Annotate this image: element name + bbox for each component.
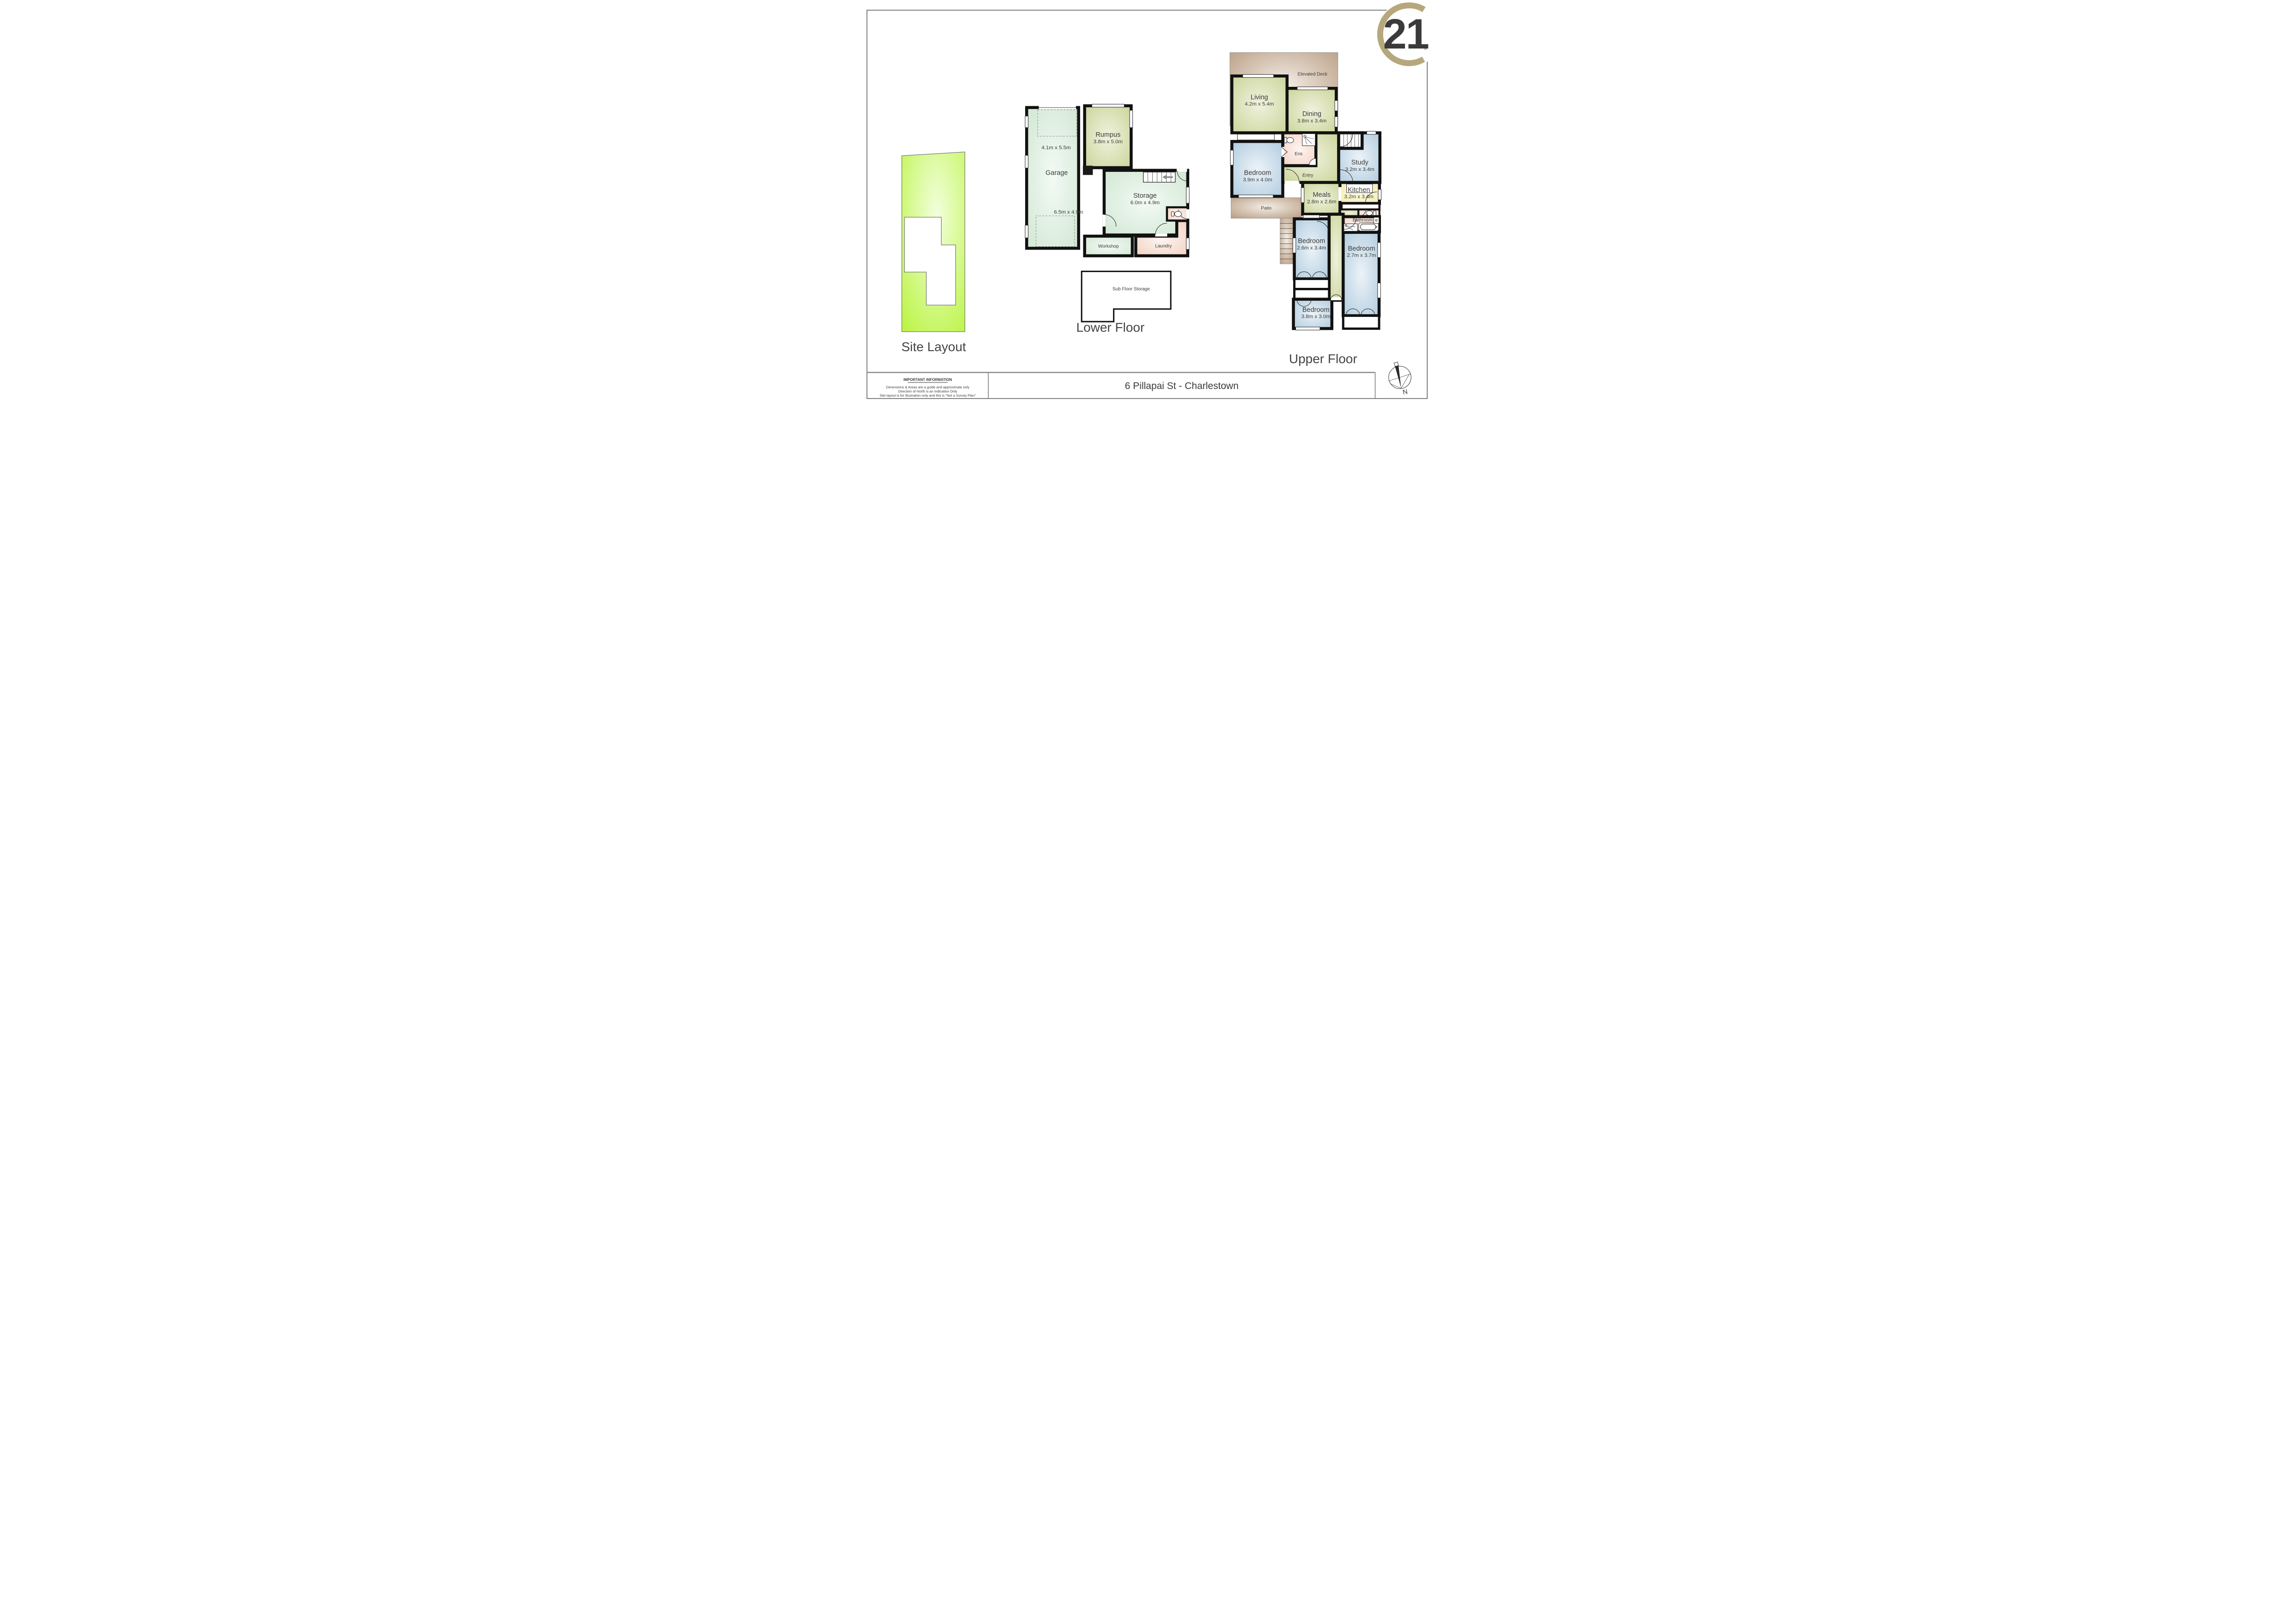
workshop-label: Workshop (1098, 244, 1119, 249)
meals-dims: 2.8m x 2.6m (1307, 199, 1336, 205)
elevated-deck-label: Elevated Deck (1297, 72, 1327, 77)
wardrobe (1294, 289, 1329, 299)
window (1092, 104, 1124, 107)
toilet-icon (1284, 137, 1293, 143)
living-dims: 4.2m x 5.4m (1245, 102, 1274, 107)
wardrobe (1294, 279, 1329, 289)
bedroom-two-dims: 2.6m x 3.4m (1297, 245, 1326, 251)
window (1130, 110, 1132, 128)
important-information: IMPORTANT INFORMATION Dimensions & Areas… (879, 377, 975, 397)
ensuite-label: Ens (1295, 152, 1302, 157)
disclaimer-line-2: Direction of North is an Indication Only (898, 389, 957, 393)
upper-floor-title: Upper Floor (1289, 352, 1357, 366)
room-garage (1027, 108, 1078, 249)
window (1378, 189, 1381, 200)
study-dims: 3.2m x 3.4m (1345, 167, 1374, 172)
room-sub-floor-storage (1082, 271, 1171, 322)
kitchen-dims: 3.2m x 3.4m (1344, 194, 1373, 200)
sink-icon (1374, 217, 1379, 223)
north-compass: N (1388, 362, 1410, 396)
stairs-lower (1143, 172, 1175, 182)
living-label: Living (1250, 94, 1268, 101)
garage-dims-top: 4.1m x 5.5m (1041, 145, 1070, 151)
site-layout-title: Site Layout (901, 340, 966, 354)
room-bedroom-three (1343, 232, 1379, 316)
site-layout: Site Layout (901, 152, 966, 354)
window (1297, 87, 1327, 90)
window (1230, 150, 1233, 165)
window (1377, 243, 1380, 257)
entry-label: Entry (1302, 173, 1313, 178)
pillar (1082, 166, 1092, 175)
century21-logo: 21 ® (1376, 1, 1432, 67)
toilet-icon (1171, 211, 1181, 216)
patio-label: Patio (1261, 206, 1271, 211)
door-opening (1102, 214, 1105, 226)
sub-floor-storage-label: Sub Floor Storage (1112, 287, 1149, 292)
lower-floor-plan: 4.1m x 5.5m Garage 6.5m x 4.9m Rumpus 3.… (1025, 104, 1189, 334)
garage-dims-bottom: 6.5m x 4.9m (1054, 209, 1083, 215)
upper-floor-plan: Elevated Deck Living 4.2m x 5.4m Dining … (1230, 53, 1381, 366)
storage-label: Storage (1133, 192, 1157, 200)
bathroom-label: Bathroom (1352, 218, 1372, 223)
bedroom-main-label: Bedroom (1244, 170, 1271, 177)
bathtub-icon (1358, 223, 1378, 231)
door-opening (1186, 209, 1189, 219)
window (1377, 283, 1380, 298)
study-label: Study (1351, 159, 1368, 166)
dining-label: Dining (1302, 110, 1321, 118)
wardrobe (1343, 316, 1379, 328)
window (1186, 187, 1189, 203)
door-opening (1155, 233, 1167, 236)
window (1025, 155, 1027, 168)
bedroom-three-dims: 2.7m x 3.7m (1347, 253, 1376, 258)
room-bedroom-main (1232, 141, 1283, 196)
footer-bar: IMPORTANT INFORMATION Dimensions & Areas… (867, 362, 1411, 398)
rumpus-label: Rumpus (1095, 131, 1120, 139)
window (1242, 74, 1273, 77)
window (1237, 134, 1274, 140)
outdoor-stairs (1280, 218, 1293, 264)
property-address: 6 Pillapai St - Charlestown (1125, 381, 1238, 391)
garage-label: Garage (1046, 170, 1068, 177)
disclaimer-line-3: Site layout is for illustration only and… (879, 393, 975, 397)
floorplan-page: Site Layout (860, 0, 1433, 406)
bedroom-main-dims: 3.9m x 4.0m (1243, 177, 1272, 182)
window (1295, 327, 1319, 330)
window (1025, 225, 1027, 237)
logo-number: 21 (1383, 11, 1428, 58)
door-opening (1284, 181, 1299, 184)
bedroom-four-label: Bedroom (1302, 306, 1329, 314)
bedroom-two-label: Bedroom (1298, 237, 1325, 245)
window (1238, 195, 1273, 198)
window (1293, 238, 1295, 253)
dining-dims: 3.8m x 3.4m (1297, 118, 1326, 124)
laundry-label: Laundry (1155, 243, 1172, 249)
meals-label: Meals (1313, 191, 1331, 199)
window (1186, 238, 1189, 249)
bedroom-three-label: Bedroom (1348, 245, 1375, 252)
window (1025, 116, 1027, 128)
floorplan-canvas: Site Layout (860, 0, 1433, 406)
shower-icon (1302, 134, 1315, 146)
door-opening (1176, 169, 1186, 171)
logo-registered-icon: ® (1423, 46, 1427, 51)
window (1335, 116, 1338, 127)
lower-floor-title: Lower Floor (1076, 320, 1144, 335)
important-information-heading: IMPORTANT INFORMATION (903, 377, 952, 382)
kitchen-label: Kitchen (1348, 186, 1370, 194)
hallway (1329, 214, 1343, 300)
stairs-upper (1338, 133, 1362, 148)
door-opening (1331, 297, 1342, 300)
compass-north-label: N (1402, 388, 1408, 396)
opening (1338, 187, 1341, 201)
storage-dims: 6.0m x 4.9m (1130, 200, 1159, 206)
window (1303, 215, 1319, 218)
rumpus-dims: 3.8m x 5.0m (1093, 139, 1122, 145)
window (1367, 131, 1376, 134)
toilet-icon (1366, 211, 1375, 215)
window (1301, 188, 1304, 202)
disclaimer-line-1: Dimensions & Areas are a guide and appro… (886, 385, 969, 389)
window (1335, 100, 1338, 110)
bedroom-four-dims: 3.8m x 3.0m (1301, 314, 1330, 320)
